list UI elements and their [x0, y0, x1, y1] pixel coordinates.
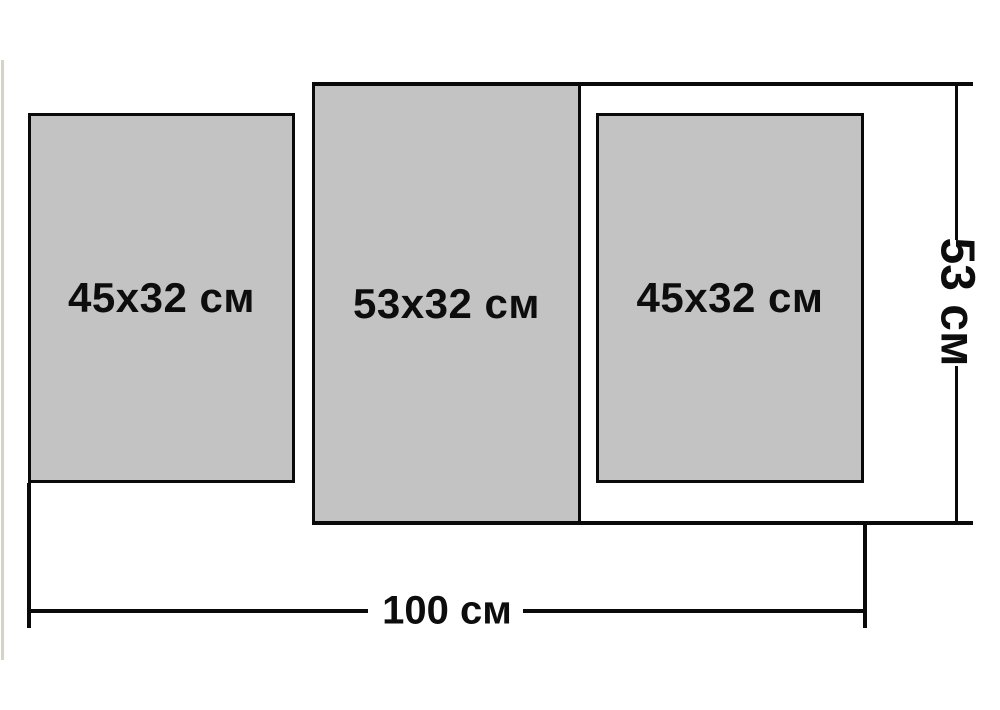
panel-middle-size-label: 53x32 см	[353, 280, 540, 328]
width-dimension-label: 100 см	[382, 589, 512, 634]
panel-left: 45x32 см	[28, 113, 295, 483]
height-dimension-extension-bottom	[581, 521, 973, 525]
width-dimension-line-left	[30, 609, 368, 613]
panel-left-size-label: 45x32 см	[68, 274, 255, 322]
panel-right-size-label: 45x32 см	[637, 274, 824, 322]
height-dimension-label: 53 см	[930, 238, 985, 367]
width-dimension-line-right	[523, 609, 864, 613]
size-diagram: 45x32 см 53x32 см 45x32 см 53 см 100 см	[0, 0, 1000, 710]
panel-right: 45x32 см	[596, 113, 864, 483]
height-dimension-line-lower	[955, 366, 958, 523]
height-dimension-line-upper	[955, 84, 958, 240]
height-dimension-extension-top	[581, 82, 973, 86]
photo-edge-artifact-line	[1, 60, 4, 660]
panel-middle: 53x32 см	[312, 82, 581, 525]
width-dimension-tick-left	[27, 483, 31, 628]
